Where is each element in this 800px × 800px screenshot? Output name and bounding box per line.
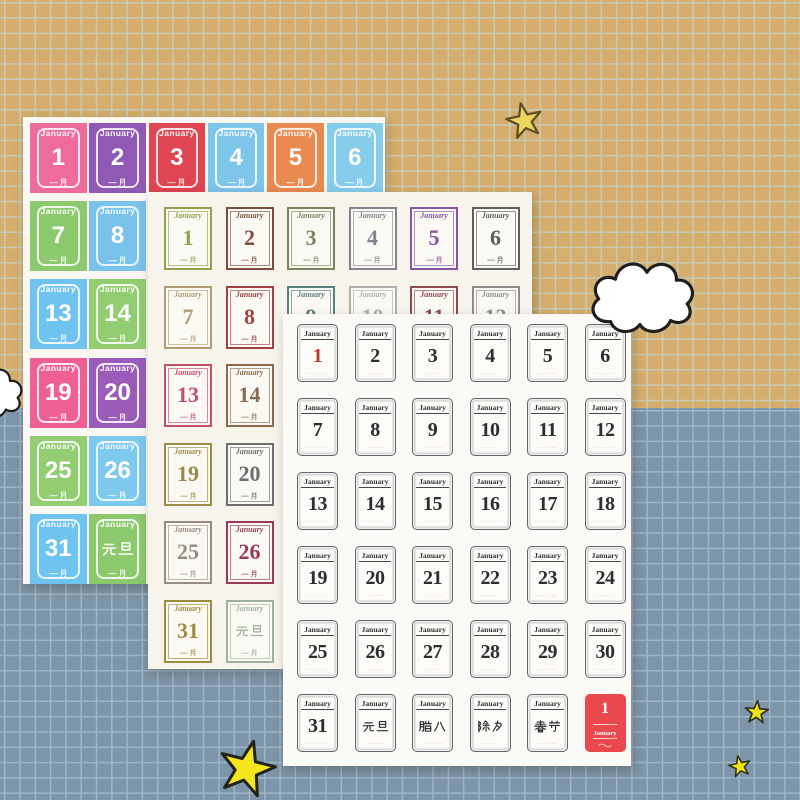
stamp-fine-print: ······· [307, 742, 328, 747]
fine-print-gray: ····· [537, 741, 552, 747]
fine-print-gray: ····· [422, 741, 437, 747]
fine-print-red: ·· [494, 741, 500, 747]
stamp-month-label: January [593, 730, 616, 739]
stamp-month-label: January [301, 330, 334, 340]
stamp-month-cn [49, 178, 68, 187]
stamp-day-number: 31 [45, 537, 72, 561]
fine-print-red: ·· [552, 593, 558, 599]
stamp-month-label: January [420, 212, 448, 220]
stamp-day-number: 11 [539, 420, 557, 440]
stamp-day-number: 7 [183, 306, 194, 328]
stamp-month-cn [49, 256, 68, 265]
date-sticker-middle: January31 [164, 600, 212, 663]
stamp-fine-print: ······· [595, 520, 616, 525]
date-sticker-front: January14······· [355, 472, 396, 530]
stamp-month-cn [108, 491, 127, 500]
date-sticker-back: January31 [30, 514, 87, 584]
stamp-month-cn [49, 491, 68, 500]
stamp-month-cn [180, 335, 197, 343]
date-sticker-front: January18······· [585, 472, 626, 530]
stamp-month-label: January [236, 369, 264, 377]
stamp-month-label: January [100, 206, 135, 216]
fine-print-red: ·· [552, 741, 558, 747]
fine-print-red: ·· [437, 445, 443, 451]
stamp-month-label: January [236, 605, 264, 613]
stamp-month-cn [364, 256, 381, 264]
stamp-month-label: January [174, 605, 202, 613]
date-sticker-front: January22······· [470, 546, 511, 604]
stamp-month-label: January [416, 478, 449, 488]
stamp-month-cn [180, 570, 197, 578]
stamp-day-number: 24 [596, 568, 615, 588]
stamp-day-number: 18 [596, 494, 615, 514]
date-sticker-back: January3 [149, 123, 206, 193]
fine-print-gray: ····· [537, 593, 552, 599]
fine-print-gray: ····· [480, 371, 495, 377]
fine-print-gray: ····· [595, 371, 610, 377]
stamp-fine-print: ······· [537, 520, 558, 525]
stamp-month-label: January [589, 626, 622, 636]
stamp-month-label: January [174, 369, 202, 377]
stamp-month-label: January [474, 330, 507, 340]
stamp-divider [593, 724, 618, 725]
stamp-fine-print: ······· [422, 594, 443, 599]
date-sticker-front: January16······· [470, 472, 511, 530]
stamp-day-number: 28 [481, 642, 500, 662]
stamp-day-cjk [235, 624, 264, 638]
stamp-day-number: 5 [429, 227, 440, 249]
date-sticker-front: January15······· [412, 472, 453, 530]
fine-print-red: ·· [609, 445, 615, 451]
date-sticker-front: January23······· [527, 546, 568, 604]
stamp-month-cn [49, 413, 68, 422]
stamp-day-number: 14 [239, 384, 261, 406]
stamp-day-cjk [362, 720, 389, 733]
fine-print-gray: ····· [480, 593, 495, 599]
stamp-month-cn [227, 178, 246, 187]
date-sticker-middle: January5 [410, 207, 458, 270]
fine-print-gray: ····· [595, 445, 610, 451]
stamp-fine-print: ······· [422, 742, 443, 747]
stamp-day-number: 2 [370, 346, 380, 366]
stamp-fine-print: ······· [365, 742, 386, 747]
stamp-day-number: 14 [104, 302, 131, 326]
fine-print-gray: ····· [365, 519, 380, 525]
fine-print-gray: ····· [365, 667, 380, 673]
stamp-day-cjk [477, 720, 504, 733]
stamp-day-number: 3 [170, 146, 183, 170]
fine-print-red: ·· [437, 519, 443, 525]
stamp-day-number: 25 [45, 459, 72, 483]
stamp-day-number: 8 [370, 420, 380, 440]
stamp-month-label: January [589, 552, 622, 562]
date-sticker-front: January29······· [527, 620, 568, 678]
stamp-day-number: 30 [596, 642, 615, 662]
stamp-month-label: January [100, 519, 135, 529]
stamp-fine-print: ······· [595, 668, 616, 673]
stamp-month-label: January [41, 284, 76, 294]
stamp-day-number: 27 [423, 642, 442, 662]
date-sticker-back: January1 [30, 123, 87, 193]
stamp-day-number: 20 [239, 463, 261, 485]
stamp-month-cn [241, 256, 258, 264]
fine-print-red: ·· [609, 593, 615, 599]
date-sticker-middle: January14 [226, 364, 274, 427]
stamp-day-number: 2 [244, 227, 255, 249]
stamp-month-cn [108, 569, 127, 578]
stamp-month-label: January [236, 291, 264, 299]
stamp-day-number: 2 [111, 146, 124, 170]
stamp-month-label: January [297, 212, 325, 220]
fine-print-gray: ····· [422, 667, 437, 673]
stamp-month-cn [108, 413, 127, 422]
date-sticker-front: January······· [355, 694, 396, 752]
stamp-month-cn [345, 178, 364, 187]
date-sticker-front: January17······· [527, 472, 568, 530]
fine-print-red: ·· [609, 667, 615, 673]
star-top-icon [502, 99, 547, 144]
fine-print-red: ·· [552, 445, 558, 451]
stamp-fine-print: ······· [537, 742, 558, 747]
fine-print-gray: ····· [365, 371, 380, 377]
date-sticker-middle: January1 [164, 207, 212, 270]
fine-print-red: ·· [322, 519, 328, 525]
date-sticker-middle: January25 [164, 521, 212, 584]
fine-print-red: ·· [322, 741, 328, 747]
stamp-fine-print: ······· [480, 668, 501, 673]
stamp-day-number: 20 [104, 381, 131, 405]
stamp-day-number: 15 [423, 494, 442, 514]
fine-print-gray: ····· [480, 445, 495, 451]
stamp-day-cjk [419, 720, 446, 733]
date-sticker-back: January26 [89, 436, 146, 506]
stamp-fine-print: ······· [537, 668, 558, 673]
stamp-day-number: 16 [481, 494, 500, 514]
stamp-fine-print: ······· [307, 594, 328, 599]
stamp-month-label: January [359, 330, 392, 340]
stamp-month-label: January [482, 291, 510, 299]
stamp-day-number: 25 [308, 642, 327, 662]
stamp-day-cjk [534, 720, 561, 733]
fine-print-gray: ····· [595, 593, 610, 599]
date-sticker-middle: January [226, 600, 274, 663]
date-sticker-front: January······· [412, 694, 453, 752]
stamp-day-number: 5 [543, 346, 553, 366]
date-sticker-front: January20······· [355, 546, 396, 604]
cloud-left-edge [0, 330, 26, 455]
date-sticker-front: January12······· [585, 398, 626, 456]
stamp-month-label: January [236, 212, 264, 220]
stamp-month-label: January [337, 128, 372, 138]
stamp-month-label: January [359, 626, 392, 636]
stamp-fine-print: ······· [307, 520, 328, 525]
stamp-month-cn [180, 256, 197, 264]
stamp-month-label: January [416, 404, 449, 414]
stamp-day-number: 14 [366, 494, 385, 514]
stamp-month-label: January [474, 478, 507, 488]
stamp-fine-print: ······· [422, 520, 443, 525]
stamp-day-number: 31 [177, 620, 199, 642]
stamp-month-cn [286, 178, 305, 187]
fine-print-red: ·· [379, 593, 385, 599]
cloud-main-icon [581, 246, 699, 340]
stamp-month-label: January [359, 552, 392, 562]
fine-print-gray: ····· [480, 519, 495, 525]
stamp-fine-print: ······· [422, 372, 443, 377]
fine-print-red: ·· [379, 741, 385, 747]
stamp-fine-print: ······· [365, 372, 386, 377]
stamp-month-label: January [41, 363, 76, 373]
cloud-left-edge-icon [0, 330, 26, 450]
stamp-day-number: 20 [366, 568, 385, 588]
stamp-fine-print: ······· [365, 446, 386, 451]
stamp-day-number: 12 [596, 420, 615, 440]
stamp-day-number: 6 [348, 146, 361, 170]
stamp-day-number: 9 [428, 420, 438, 440]
date-sticker-middle: January26 [226, 521, 274, 584]
date-sticker-back: January2 [89, 123, 146, 193]
stamp-month-label: January [301, 626, 334, 636]
date-sticker-front: January11······· [527, 398, 568, 456]
fine-print-red: ·· [552, 667, 558, 673]
date-sticker-middle: January20 [226, 443, 274, 506]
fine-print-red: ·· [437, 593, 443, 599]
stamp-month-cn [49, 334, 68, 343]
stamp-day-number: 8 [244, 306, 255, 328]
flourish-icon [597, 742, 613, 748]
sticker-sheet-front: January1·······January2·······January3··… [283, 314, 631, 766]
stamp-day-number: 29 [538, 642, 557, 662]
stamp-month-label: January [531, 330, 564, 340]
stamp-day-number: 13 [177, 384, 199, 406]
fine-print-gray: ····· [480, 741, 495, 747]
fine-print-red: ·· [552, 519, 558, 525]
stamp-month-label: January [531, 626, 564, 636]
fine-print-gray: ····· [595, 667, 610, 673]
date-sticker-front: January25······· [297, 620, 338, 678]
stamp-month-label: January [531, 700, 564, 710]
date-sticker-back: January7 [30, 201, 87, 271]
stamp-month-label: January [41, 128, 76, 138]
date-sticker-front: January30······· [585, 620, 626, 678]
stamp-month-cn [108, 334, 127, 343]
stamp-day-number: 3 [306, 227, 317, 249]
fine-print-gray: ····· [307, 519, 322, 525]
fine-print-red: ·· [322, 445, 328, 451]
stamp-month-cn [241, 649, 258, 657]
stamp-day-number: 19 [45, 381, 72, 405]
fine-print-gray: ····· [537, 371, 552, 377]
stamp-month-cn [49, 569, 68, 578]
date-sticker-front: January1······· [297, 324, 338, 382]
stamp-day-number: 7 [313, 420, 323, 440]
stamp-day-number: 5 [289, 146, 302, 170]
stamp-month-label: January [218, 128, 253, 138]
stamp-month-cn [108, 178, 127, 187]
date-sticker-front: January21······· [412, 546, 453, 604]
fine-print-red: ·· [609, 371, 615, 377]
stamp-day-number: 17 [538, 494, 557, 514]
stamp-day-number: 22 [481, 568, 500, 588]
stamp-month-label: January [236, 448, 264, 456]
date-sticker-front: January3······· [412, 324, 453, 382]
stamp-day-number: 19 [308, 568, 327, 588]
date-sticker-front: January26······· [355, 620, 396, 678]
stamp-month-label: January [100, 441, 135, 451]
stamp-month-label: January [100, 363, 135, 373]
date-sticker-front: January······· [470, 694, 511, 752]
stamp-month-cn [241, 570, 258, 578]
stamp-fine-print: ······· [365, 520, 386, 525]
date-sticker-middle: January3 [287, 207, 335, 270]
stamp-month-cn [241, 492, 258, 500]
stamp-day-number: 1 [601, 701, 609, 717]
stamp-month-label: January [236, 526, 264, 534]
fine-print-red: ·· [437, 371, 443, 377]
stamp-month-label: January [174, 291, 202, 299]
stamp-month-label: January [174, 448, 202, 456]
stamp-fine-print: ······· [422, 446, 443, 451]
stamp-month-label: January [416, 626, 449, 636]
fine-print-red: ·· [494, 593, 500, 599]
stamp-day-number: 6 [600, 346, 610, 366]
fine-print-gray: ····· [365, 741, 380, 747]
stamp-day-number: 13 [45, 302, 72, 326]
fine-print-red: ·· [379, 371, 385, 377]
date-sticker-front: January9······· [412, 398, 453, 456]
stamp-day-number: 10 [481, 420, 500, 440]
fine-print-gray: ····· [422, 593, 437, 599]
stamp-month-cn [241, 335, 258, 343]
date-sticker-front: January8······· [355, 398, 396, 456]
stamp-day-number: 7 [52, 224, 65, 248]
date-sticker-front: January13······· [297, 472, 338, 530]
stamp-day-number: 4 [485, 346, 495, 366]
stamp-month-label: January [174, 526, 202, 534]
fine-print-gray: ····· [422, 445, 437, 451]
stamp-month-cn [108, 256, 127, 265]
stamp-fine-print: ······· [365, 594, 386, 599]
stamp-month-label: January [159, 128, 194, 138]
stamp-fine-print: ······· [307, 668, 328, 673]
stamp-month-label: January [589, 478, 622, 488]
fine-print-gray: ····· [595, 519, 610, 525]
stamp-day-number: 13 [308, 494, 327, 514]
fine-print-red: ·· [437, 741, 443, 747]
stamp-fine-print: ······· [595, 594, 616, 599]
fine-print-red: ·· [494, 445, 500, 451]
stamp-month-label: January [41, 519, 76, 529]
stamp-fine-print: ······· [422, 668, 443, 673]
fine-print-gray: ····· [307, 445, 322, 451]
date-sticker-back: January14 [89, 279, 146, 349]
stamp-month-label: January [100, 128, 135, 138]
star-small-right-upper-icon [743, 699, 770, 726]
date-sticker-front: January24······· [585, 546, 626, 604]
stamp-fine-print: ······· [480, 372, 501, 377]
stamp-day-number: 3 [428, 346, 438, 366]
date-sticker-back: January25 [30, 436, 87, 506]
stamp-month-label: January [301, 552, 334, 562]
date-sticker-middle: January19 [164, 443, 212, 506]
stamp-month-label: January [474, 404, 507, 414]
stamp-day-number: 19 [177, 463, 199, 485]
date-sticker-front: January5······· [527, 324, 568, 382]
star-small-right-upper [743, 699, 770, 731]
stamp-day-number: 26 [104, 459, 131, 483]
stamp-month-cn [303, 256, 320, 264]
date-sticker-back: January4 [208, 123, 265, 193]
stamp-day-number: 26 [239, 541, 261, 563]
stamp-day-number: 4 [367, 227, 378, 249]
fine-print-red: ·· [494, 371, 500, 377]
stamp-day-number: 26 [366, 642, 385, 662]
cloud-main [581, 246, 699, 345]
fine-print-gray: ····· [537, 445, 552, 451]
date-sticker-back: January19 [30, 358, 87, 428]
stamp-month-cn [241, 413, 258, 421]
stamp-day-number: 25 [177, 541, 199, 563]
stamp-fine-print: ······· [365, 668, 386, 673]
fine-print-gray: ····· [422, 371, 437, 377]
fine-print-red: ·· [437, 667, 443, 673]
stamp-month-label: January [482, 212, 510, 220]
stamp-month-label: January [359, 291, 387, 299]
fine-print-red: ·· [322, 667, 328, 673]
stamp-fine-print: ······· [307, 446, 328, 451]
star-small-right-lower-icon [726, 753, 753, 780]
date-sticker-back: January8 [89, 201, 146, 271]
stamp-month-cn [487, 256, 504, 264]
date-sticker-front: January7······· [297, 398, 338, 456]
date-sticker-back: January5 [267, 123, 324, 193]
stamp-month-label: January [416, 330, 449, 340]
stamp-fine-print: ······· [480, 594, 501, 599]
stamp-month-label: January [359, 700, 392, 710]
date-sticker-front: January28······· [470, 620, 511, 678]
date-sticker-middle: January2 [226, 207, 274, 270]
date-sticker-front: January4······· [470, 324, 511, 382]
stamp-month-label: January [301, 700, 334, 710]
fine-print-gray: ····· [537, 519, 552, 525]
stamp-day-number: 6 [490, 227, 501, 249]
date-sticker-back: January20 [89, 358, 146, 428]
stamp-fine-print: ······· [480, 520, 501, 525]
fine-print-red: ·· [379, 445, 385, 451]
stamp-month-label: January [100, 284, 135, 294]
stamp-month-label: January [301, 478, 334, 488]
date-sticker-middle: January13 [164, 364, 212, 427]
fine-print-red: ·· [322, 371, 328, 377]
stamp-month-label: January [359, 404, 392, 414]
stamp-month-cn [426, 256, 443, 264]
stamp-month-label: January [474, 626, 507, 636]
stamp-day-number: 8 [111, 224, 124, 248]
date-sticker-middle: January8 [226, 286, 274, 349]
stamp-month-label: January [174, 212, 202, 220]
date-sticker-back: January13 [30, 279, 87, 349]
stamp-month-label: January [41, 441, 76, 451]
stamp-month-cn [167, 178, 186, 187]
stamp-day-number: 1 [52, 146, 65, 170]
stamp-day-number: 4 [229, 146, 242, 170]
stamp-month-label: January [420, 291, 448, 299]
stamp-day-number: 1 [183, 227, 194, 249]
stamp-month-label: January [359, 478, 392, 488]
date-sticker-front: January31······· [297, 694, 338, 752]
stamp-day-number: 23 [538, 568, 557, 588]
date-sticker-front: January27······· [412, 620, 453, 678]
